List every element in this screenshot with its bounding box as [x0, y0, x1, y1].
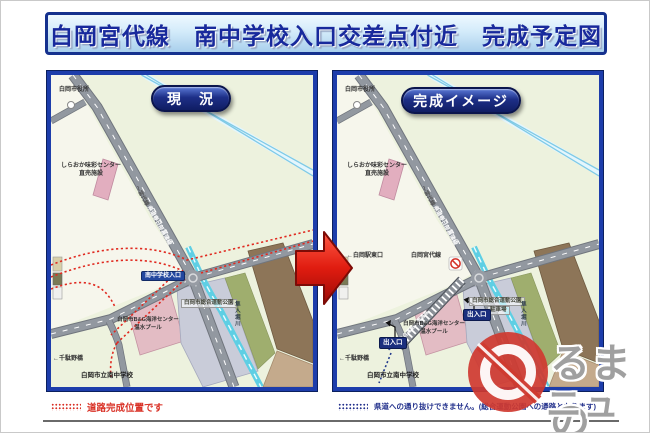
title-banner: 白岡宮代線 南中学校入口交差点付近 完成予定図	[45, 12, 607, 55]
transform-arrow-icon	[294, 229, 354, 307]
label-sports-park: 白岡市総合運動公園	[469, 297, 525, 306]
label-city-hall: 白岡市役所	[345, 87, 375, 95]
label-route-name: 白岡宮代線	[411, 253, 441, 261]
legend-planned-road: 道路完成位置です	[51, 400, 163, 414]
label-heated-pool: 温水プール	[393, 329, 475, 336]
label-bg-marine-center: 白岡市B&G海洋センター	[393, 321, 475, 328]
label-bridge: ←千駄野橋	[339, 356, 369, 364]
label-school: 白岡市立南中学校	[367, 372, 419, 380]
legend-blue-dotted-swatch	[338, 403, 368, 411]
label-sports-park: 白岡市総合運動公園	[181, 299, 237, 308]
badge-completed-label: 完成イメージ	[413, 91, 509, 111]
badge-entrance-b: 出入口	[379, 337, 407, 349]
label-ajisai-facility: 直売施設	[55, 171, 127, 179]
map-current-drawing	[51, 75, 313, 387]
label-bridge: ←千駄野橋	[53, 356, 83, 364]
badge-current-label: 現 況	[167, 89, 215, 109]
flyer-page: 白岡宮代線 南中学校入口交差点付近 完成予定図 現 況 白岡市役所 しらおか味彩…	[0, 0, 650, 433]
label-heated-pool: 温水プール	[107, 325, 189, 332]
map-panel-current: 現 況 白岡市役所 しらおか味彩センター 直売施設 〜宮代線 県道春日部菖蒲線 …	[47, 71, 317, 391]
label-bg-marine-center: 白岡市B&G海洋センター	[107, 317, 189, 324]
map-completed-drawing	[337, 75, 599, 387]
label-ajisai-center: しらおか味彩センター	[341, 163, 413, 171]
legend-no-through: 県道への通り抜けできません。(総合運動公園への通路となります)	[338, 401, 596, 412]
badge-entrance-a: 出入口	[463, 309, 491, 321]
badge-completed-image: 完成イメージ	[401, 87, 521, 114]
map-panel-completed: 完成イメージ 白岡市役所 しらおか味彩センター 直売施設 〜宮代線 県道春日部菖…	[333, 71, 603, 391]
label-ajisai-facility: 直売施設	[341, 171, 413, 179]
label-river: 隼人堀川	[233, 301, 240, 327]
flyer-bottom-border	[43, 420, 619, 422]
badge-current-status: 現 況	[151, 85, 231, 112]
tag-intersection-name: 南中学校入口	[141, 271, 185, 281]
legend-right-text: 県道への通り抜けできません。(総合運動公園への通路となります)	[374, 401, 596, 412]
label-river: 隼人堀川	[519, 301, 526, 327]
label-city-hall: 白岡市役所	[59, 87, 89, 95]
legend-left-text: 道路完成位置です	[87, 400, 163, 414]
no-entry-icon	[449, 257, 462, 270]
label-school: 白岡市立南中学校	[81, 372, 133, 380]
page-title: 白岡宮代線 南中学校入口交差点付近 完成予定図	[50, 17, 602, 51]
label-ajisai-center: しらおか味彩センター	[55, 163, 127, 171]
legend-red-dotted-swatch	[51, 403, 81, 411]
